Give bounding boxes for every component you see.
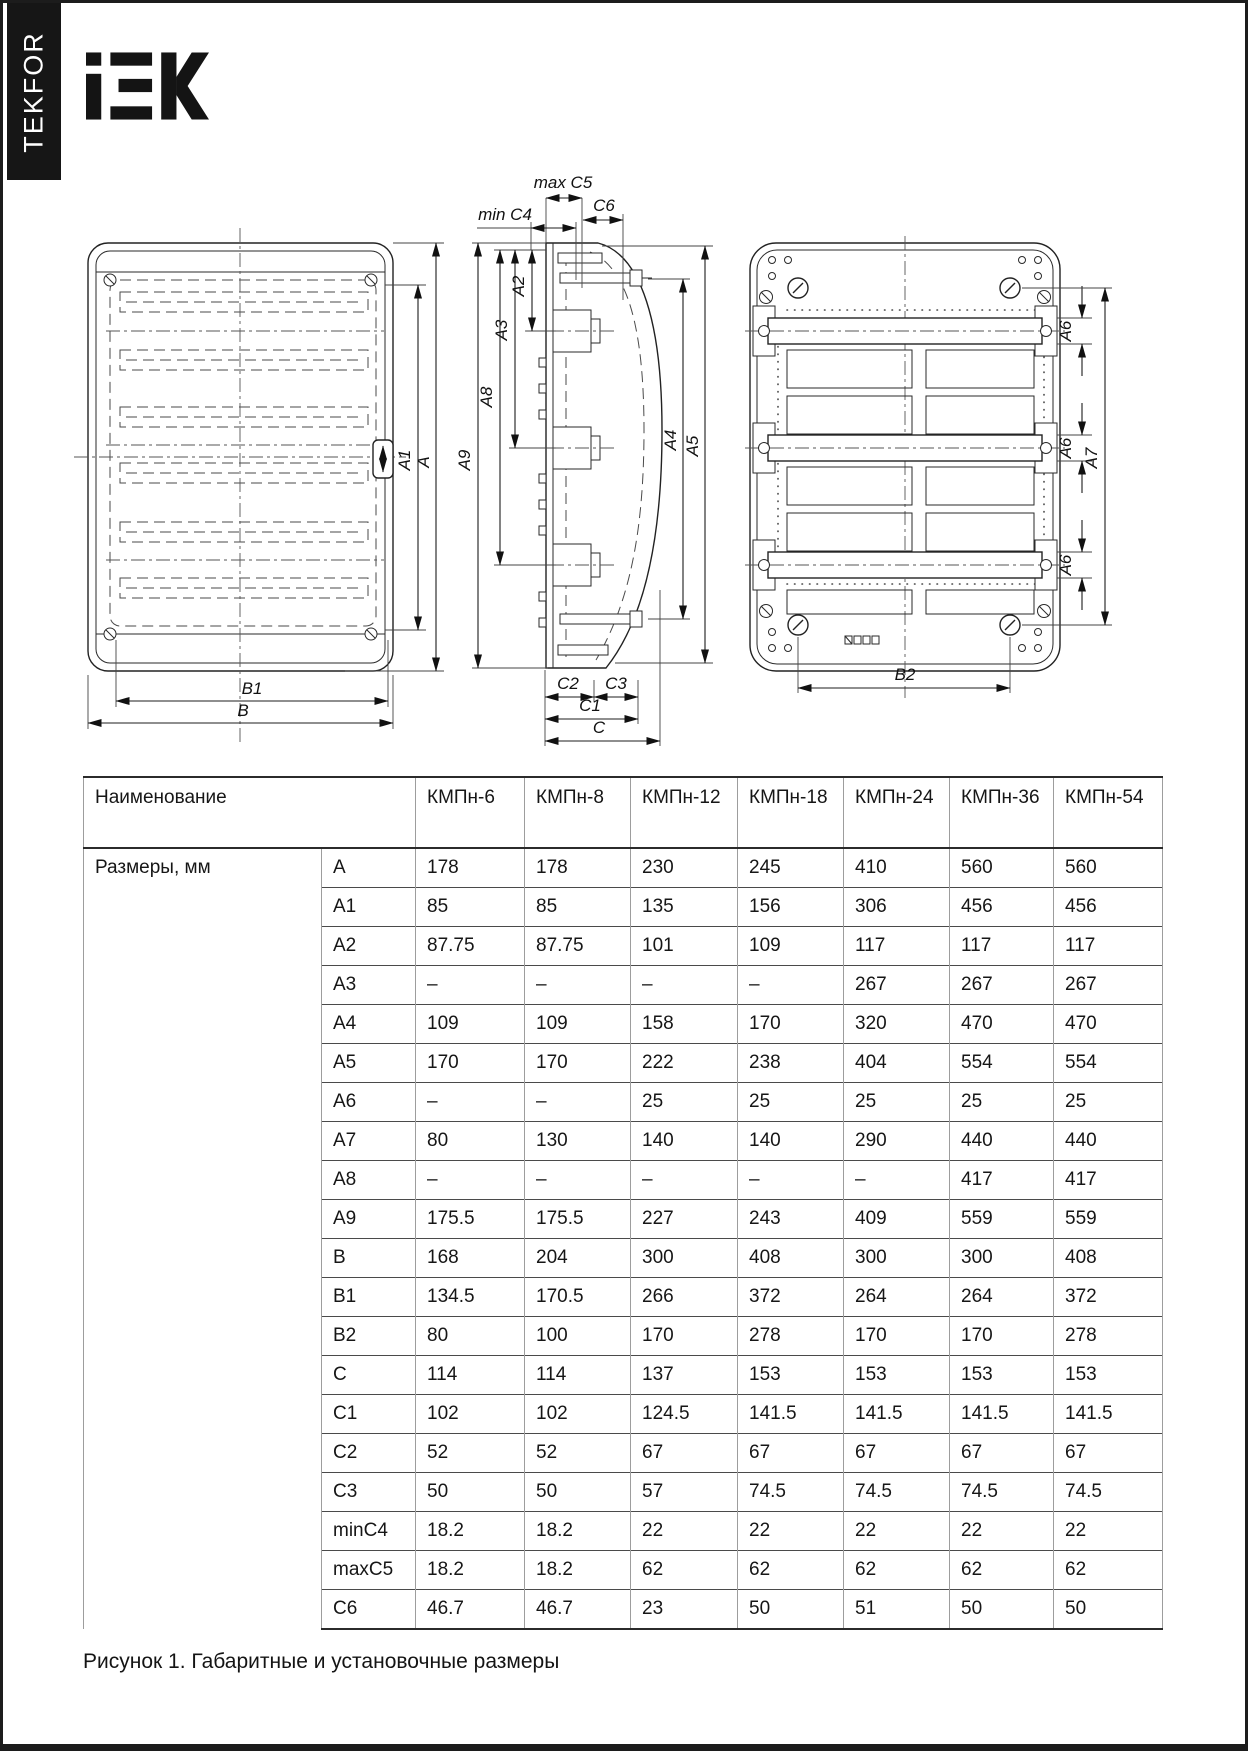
dimension-value-cell: 22 — [738, 1512, 844, 1551]
dim-label-c2: C2 — [557, 674, 579, 693]
column-header-model: КМПн-36 — [950, 777, 1054, 848]
dim-label-a: A — [414, 456, 433, 468]
dimension-name-cell: A4 — [322, 1005, 416, 1044]
dimension-name-cell: A8 — [322, 1161, 416, 1200]
dimension-value-cell: 67 — [950, 1434, 1054, 1473]
dimension-name-cell: A3 — [322, 966, 416, 1005]
dimension-value-cell: 114 — [416, 1356, 525, 1395]
dimension-value-cell: 372 — [738, 1278, 844, 1317]
dimension-value-cell: 141.5 — [1054, 1395, 1163, 1434]
dimension-value-cell: 320 — [844, 1005, 950, 1044]
dimension-drawings: A1 A B1 B — [0, 140, 1248, 770]
dimension-value-cell: 74.5 — [738, 1473, 844, 1512]
dimension-value-cell: 140 — [738, 1122, 844, 1161]
column-header-model: КМПн-18 — [738, 777, 844, 848]
dim-label-a5: A5 — [683, 435, 702, 457]
dimension-value-cell: 80 — [416, 1122, 525, 1161]
dimension-value-cell: 408 — [738, 1239, 844, 1278]
column-header-model: КМПн-54 — [1054, 777, 1163, 848]
dimension-value-cell: – — [738, 1161, 844, 1200]
dimension-value-cell: 153 — [844, 1356, 950, 1395]
dimension-value-cell: 22 — [844, 1512, 950, 1551]
dimension-value-cell: 170 — [631, 1317, 738, 1356]
dimension-value-cell: 264 — [950, 1278, 1054, 1317]
dimension-value-cell: 560 — [1054, 848, 1163, 888]
dimension-value-cell: 50 — [738, 1590, 844, 1630]
dimension-value-cell: 300 — [844, 1239, 950, 1278]
dimension-value-cell: 158 — [631, 1005, 738, 1044]
front-view-drawing: A1 A B1 B — [74, 228, 444, 744]
dimension-value-cell: 134.5 — [416, 1278, 525, 1317]
column-header-model: КМПн-8 — [525, 777, 631, 848]
dim-label-min-c4: min C4 — [478, 205, 532, 224]
dimension-value-cell: 440 — [950, 1122, 1054, 1161]
dimension-name-cell: A7 — [322, 1122, 416, 1161]
dimension-name-cell: A5 — [322, 1044, 416, 1083]
dimension-value-cell: 153 — [950, 1356, 1054, 1395]
dimension-value-cell: 170 — [738, 1005, 844, 1044]
dimension-value-cell: 306 — [844, 888, 950, 927]
dimension-value-cell: 559 — [950, 1200, 1054, 1239]
dimension-value-cell: 408 — [1054, 1239, 1163, 1278]
dimension-value-cell: 57 — [631, 1473, 738, 1512]
row-group-label: Размеры, мм — [84, 848, 322, 1629]
dimension-value-cell: 559 — [1054, 1200, 1163, 1239]
dimension-value-cell: 18.2 — [416, 1512, 525, 1551]
column-header-model: КМПн-24 — [844, 777, 950, 848]
dimension-value-cell: 178 — [525, 848, 631, 888]
dimension-name-cell: A6 — [322, 1083, 416, 1122]
dimension-value-cell: 62 — [1054, 1551, 1163, 1590]
dim-label-c6: C6 — [593, 196, 615, 215]
dimension-value-cell: 170 — [844, 1317, 950, 1356]
dimension-name-cell: C2 — [322, 1434, 416, 1473]
dimension-value-cell: 74.5 — [844, 1473, 950, 1512]
dimension-value-cell: 117 — [1054, 927, 1163, 966]
dimension-value-cell: 25 — [844, 1083, 950, 1122]
dimension-value-cell: 170 — [950, 1317, 1054, 1356]
dimension-name-cell: B1 — [322, 1278, 416, 1317]
dimension-value-cell: 175.5 — [525, 1200, 631, 1239]
dimension-value-cell: 51 — [844, 1590, 950, 1630]
dim-label-c1: C1 — [579, 696, 601, 715]
dimension-value-cell: 410 — [844, 848, 950, 888]
dim-label-a1: A1 — [395, 450, 414, 472]
dimension-value-cell: 456 — [950, 888, 1054, 927]
dimension-value-cell: 140 — [631, 1122, 738, 1161]
dimension-value-cell: 137 — [631, 1356, 738, 1395]
din-teeth — [539, 358, 546, 627]
dimension-value-cell: 109 — [416, 1005, 525, 1044]
dim-label-a3: A3 — [492, 319, 511, 341]
dimension-value-cell: 62 — [631, 1551, 738, 1590]
dimension-value-cell: 153 — [1054, 1356, 1163, 1395]
dimension-value-cell: 117 — [844, 927, 950, 966]
dimension-value-cell: 156 — [738, 888, 844, 927]
dimension-value-cell: 141.5 — [950, 1395, 1054, 1434]
dimension-value-cell: 470 — [1054, 1005, 1163, 1044]
dim-label-a6: A6 — [1056, 554, 1075, 576]
dimension-value-cell: 417 — [1054, 1161, 1163, 1200]
dimension-value-cell: 22 — [631, 1512, 738, 1551]
dimension-name-cell: C — [322, 1356, 416, 1395]
dimension-value-cell: 404 — [844, 1044, 950, 1083]
dimension-value-cell: 278 — [1054, 1317, 1163, 1356]
dimension-value-cell: 245 — [738, 848, 844, 888]
dimension-value-cell: 470 — [950, 1005, 1054, 1044]
dimension-value-cell: 267 — [950, 966, 1054, 1005]
dimension-value-cell: 456 — [1054, 888, 1163, 927]
dimensions-tbody: Размеры, ммA178178230245410560560A185851… — [84, 848, 1163, 1629]
dimension-value-cell: – — [416, 966, 525, 1005]
dimension-value-cell: – — [416, 1083, 525, 1122]
dimension-name-cell: A — [322, 848, 416, 888]
dimension-value-cell: 74.5 — [1054, 1473, 1163, 1512]
dimension-value-cell: 62 — [950, 1551, 1054, 1590]
dimension-value-cell: 204 — [525, 1239, 631, 1278]
dimension-value-cell: 117 — [950, 927, 1054, 966]
dimension-value-cell: 87.75 — [416, 927, 525, 966]
dimension-value-cell: 141.5 — [738, 1395, 844, 1434]
dimension-value-cell: 18.2 — [416, 1551, 525, 1590]
dimension-value-cell: 67 — [631, 1434, 738, 1473]
dimension-value-cell: 170.5 — [525, 1278, 631, 1317]
dimension-name-cell: minC4 — [322, 1512, 416, 1551]
dimension-value-cell: 85 — [416, 888, 525, 927]
dimension-value-cell: 74.5 — [950, 1473, 1054, 1512]
dim-label-b1: B1 — [242, 679, 263, 698]
dim-label-a6: A6 — [1056, 437, 1075, 459]
dimension-value-cell: 230 — [631, 848, 738, 888]
dimension-value-cell: – — [416, 1161, 525, 1200]
dimension-value-cell: 46.7 — [525, 1590, 631, 1630]
dimension-value-cell: 372 — [1054, 1278, 1163, 1317]
dimension-name-cell: maxC5 — [322, 1551, 416, 1590]
dimension-value-cell: 85 — [525, 888, 631, 927]
dimension-value-cell: 222 — [631, 1044, 738, 1083]
catalog-page: TEKFOR — [0, 0, 1248, 1751]
dimension-value-cell: 238 — [738, 1044, 844, 1083]
dimension-value-cell: 80 — [416, 1317, 525, 1356]
door-handle — [373, 440, 393, 478]
dimension-value-cell: 102 — [525, 1395, 631, 1434]
dimension-value-cell: 290 — [844, 1122, 950, 1161]
dimension-value-cell: – — [844, 1161, 950, 1200]
dimension-value-cell: 175.5 — [416, 1200, 525, 1239]
dimension-value-cell: 23 — [631, 1590, 738, 1630]
dimension-name-cell: A9 — [322, 1200, 416, 1239]
dimension-value-cell: 170 — [525, 1044, 631, 1083]
dimension-name-cell: C1 — [322, 1395, 416, 1434]
rear-view-drawing: B2 A6 A6 A6 A7 — [745, 236, 1112, 698]
dimension-value-cell: 109 — [525, 1005, 631, 1044]
dimension-name-cell: B2 — [322, 1317, 416, 1356]
dim-label-a4: A4 — [661, 430, 680, 452]
dim-label-c: C — [593, 718, 606, 737]
dimension-value-cell: 409 — [844, 1200, 950, 1239]
dimension-value-cell: 267 — [844, 966, 950, 1005]
dimension-value-cell: 266 — [631, 1278, 738, 1317]
dimension-value-cell: 52 — [525, 1434, 631, 1473]
dimension-value-cell: – — [525, 1083, 631, 1122]
dimension-value-cell: 67 — [844, 1434, 950, 1473]
side-view-drawing: max C5 min C4 C6 A9 A8 A3 A2 — [455, 173, 713, 746]
dimension-value-cell: 22 — [950, 1512, 1054, 1551]
dimension-value-cell: 560 — [950, 848, 1054, 888]
iek-logo — [86, 52, 210, 120]
dimension-name-cell: B — [322, 1239, 416, 1278]
dim-label-b: B — [237, 701, 248, 720]
column-header-model: КМПн-6 — [416, 777, 525, 848]
dimension-value-cell: 243 — [738, 1200, 844, 1239]
dimension-value-cell: 22 — [1054, 1512, 1163, 1551]
dimension-value-cell: 25 — [738, 1083, 844, 1122]
dimension-value-cell: 50 — [1054, 1590, 1163, 1630]
dimension-value-cell: 114 — [525, 1356, 631, 1395]
dimension-value-cell: 124.5 — [631, 1395, 738, 1434]
figure-caption: Рисунок 1. Габаритные и установочные раз… — [83, 1650, 559, 1674]
dimension-value-cell: 46.7 — [416, 1590, 525, 1630]
dimension-value-cell: 102 — [416, 1395, 525, 1434]
dimension-value-cell: 267 — [1054, 966, 1163, 1005]
dimension-value-cell: 278 — [738, 1317, 844, 1356]
dimension-value-cell: 141.5 — [844, 1395, 950, 1434]
dimension-value-cell: – — [525, 1161, 631, 1200]
brand-vertical-text: TEKFOR — [19, 31, 50, 153]
dim-label-a8: A8 — [477, 386, 496, 408]
dimension-value-cell: 168 — [416, 1239, 525, 1278]
dim-label-c3: C3 — [605, 674, 627, 693]
dimension-value-cell: 135 — [631, 888, 738, 927]
table-row: Размеры, ммA178178230245410560560 — [84, 848, 1163, 888]
column-header-model: КМПн-12 — [631, 777, 738, 848]
dimension-value-cell: 264 — [844, 1278, 950, 1317]
dimension-value-cell: – — [631, 1161, 738, 1200]
dimension-value-cell: 62 — [844, 1551, 950, 1590]
dimension-value-cell: – — [525, 966, 631, 1005]
dimension-value-cell: 440 — [1054, 1122, 1163, 1161]
dimension-name-cell: A1 — [322, 888, 416, 927]
dimension-value-cell: 62 — [738, 1551, 844, 1590]
dimension-value-cell: 153 — [738, 1356, 844, 1395]
dimension-value-cell: 87.75 — [525, 927, 631, 966]
dimension-value-cell: 67 — [738, 1434, 844, 1473]
dimension-value-cell: 52 — [416, 1434, 525, 1473]
dimension-value-cell: 101 — [631, 927, 738, 966]
dimension-value-cell: 170 — [416, 1044, 525, 1083]
dimension-value-cell: – — [738, 966, 844, 1005]
dimension-value-cell: 25 — [631, 1083, 738, 1122]
dimension-value-cell: 67 — [1054, 1434, 1163, 1473]
column-header-name: Наименование — [84, 777, 416, 848]
dimension-value-cell: 554 — [1054, 1044, 1163, 1083]
dimension-name-cell: C6 — [322, 1590, 416, 1630]
dimension-value-cell: 18.2 — [525, 1551, 631, 1590]
dimension-value-cell: 554 — [950, 1044, 1054, 1083]
dim-label-a7: A7 — [1082, 447, 1101, 469]
dimension-value-cell: 50 — [416, 1473, 525, 1512]
dimension-value-cell: 100 — [525, 1317, 631, 1356]
dimensions-table: Наименование КМПн-6 КМПн-8 КМПн-12 КМПн-… — [83, 776, 1163, 1630]
dimension-value-cell: 50 — [950, 1590, 1054, 1630]
dimension-value-cell: 18.2 — [525, 1512, 631, 1551]
dimension-value-cell: 25 — [950, 1083, 1054, 1122]
dimension-name-cell: C3 — [322, 1473, 416, 1512]
dimension-value-cell: 417 — [950, 1161, 1054, 1200]
dimension-value-cell: 25 — [1054, 1083, 1163, 1122]
dimension-value-cell: 109 — [738, 927, 844, 966]
dim-label-a9: A9 — [455, 449, 474, 471]
dim-label-a6: A6 — [1056, 320, 1075, 342]
dimension-name-cell: A2 — [322, 927, 416, 966]
dim-label-b2: B2 — [895, 665, 916, 684]
dimension-value-cell: 130 — [525, 1122, 631, 1161]
dimension-value-cell: – — [631, 966, 738, 1005]
dimension-value-cell: 50 — [525, 1473, 631, 1512]
dimension-value-cell: 300 — [950, 1239, 1054, 1278]
dim-label-a2: A2 — [509, 275, 528, 297]
dimension-value-cell: 227 — [631, 1200, 738, 1239]
dim-label-max-c5: max C5 — [534, 173, 593, 192]
table-header-row: Наименование КМПн-6 КМПн-8 КМПн-12 КМПн-… — [84, 777, 1163, 848]
dimension-value-cell: 300 — [631, 1239, 738, 1278]
dimension-value-cell: 178 — [416, 848, 525, 888]
